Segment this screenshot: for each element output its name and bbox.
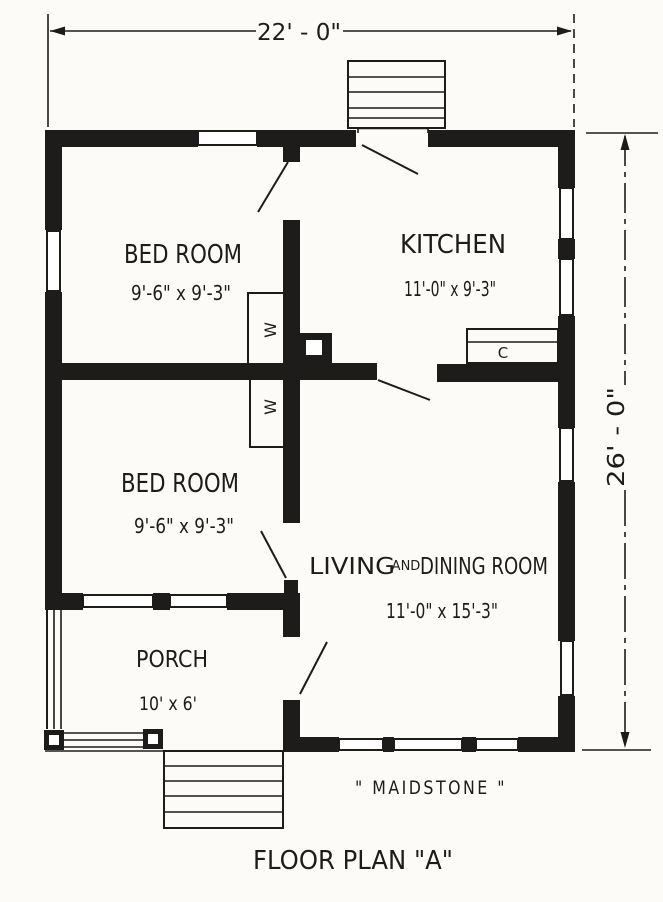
window [561,641,573,695]
front-door-swing [300,642,327,694]
living-dining-name-word1: LIVING [309,554,395,580]
arrowhead-right [557,27,572,36]
porch-size: 10' x 6' [139,693,197,715]
wardrobe-upper-label: W [261,322,280,338]
window [476,739,518,750]
window [560,188,573,239]
exterior-walls [45,130,575,752]
bedroom-lower-door-swing [261,531,286,578]
living-dining-size: 11'-0" x 15'-3" [386,599,498,623]
chimney [298,333,332,363]
overall-depth-label: 26' - 0" [604,387,630,487]
sheet-title: FLOOR PLAN "A" [253,846,453,876]
kitchen-cupboard-outline [467,329,558,363]
back-door-swing [362,145,418,174]
bedroom-lower-name: BED ROOM [121,469,239,499]
windows [47,131,573,750]
dimension-depth: 26' - 0" [582,133,658,750]
bedroom-lower-size: 9'-6" x 9'-3" [134,514,234,538]
overall-width-label: 22' - 0" [257,20,341,46]
porch-railing [44,610,283,751]
house-name: " MAIDSTONE " [355,777,507,799]
wardrobe-lower-label: W [261,399,280,415]
kitchen-cupboard-label: C [498,344,508,362]
arrowhead-down [621,732,630,748]
window [560,259,573,315]
room-labels: BED ROOM 9'-6" x 9'-3" KITCHEN 11'-0" x … [121,230,548,715]
floor-plan-drawing: 22' - 0" 26' - 0" BED ROOM 9'-6" x 9'-3"… [0,0,663,902]
kitchen-name: KITCHEN [400,230,506,260]
porch-post [143,729,163,749]
bedroom-upper-size: 9'-6" x 9'-3" [131,281,231,305]
window [47,231,60,291]
window [394,739,462,750]
titles: " MAIDSTONE " FLOOR PLAN "A" [253,777,507,876]
arrowhead-up [621,134,630,150]
arrowhead-left [50,27,65,36]
window [339,739,383,750]
bedroom-upper-door-swing [258,162,288,212]
front-steps [164,751,283,828]
bedroom-upper-name: BED ROOM [124,240,242,270]
back-steps [348,61,445,128]
window [560,428,573,481]
floor-plan-sheet: 22' - 0" 26' - 0" BED ROOM 9'-6" x 9'-3"… [0,0,663,902]
kitchen-size: 11'-0" x 9'-3" [404,277,496,301]
living-dining-name-conj: AND [392,559,421,574]
dimension-width: 22' - 0" [48,14,574,127]
porch-post [44,730,64,750]
kitchen-door-swing [378,380,430,400]
window [170,595,227,607]
living-dining-name-word2: DINING ROOM [420,554,548,580]
window [198,131,257,145]
porch-name: PORCH [136,647,208,673]
window [83,595,153,607]
